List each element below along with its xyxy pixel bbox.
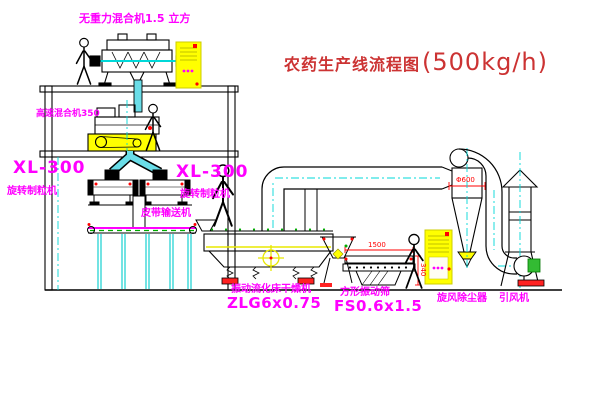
control-cabinet-right [425, 230, 452, 284]
dimension-screen-height: 340 [419, 263, 426, 276]
label-gravity-mixer: 无重力混合机1.5 立方 [79, 13, 190, 24]
label-granulator-right-name: 旋转制粒机 [180, 190, 230, 200]
control-cabinet-top [176, 42, 201, 88]
dimension-screen-length: 1500 [368, 242, 386, 249]
granulator-left-drawing [88, 170, 138, 205]
cyclone-drawing [449, 148, 485, 270]
label-screen-model: FS0.6x1.5 [334, 299, 422, 314]
belt-conveyor-drawing [88, 223, 197, 289]
drawing-title: 农药生产线流程图 (500kg/h) [284, 48, 548, 76]
dimension-cyclone-diameter: Φ600 [456, 177, 475, 184]
fluid-bed-dryer-drawing [204, 228, 333, 284]
label-dryer-model: ZLG6x0.75 [227, 296, 321, 311]
label-fan-name: 引风机 [499, 294, 529, 304]
label-cyclone-name: 旋风除尘器 [437, 294, 487, 304]
label-granulator-left-name: 旋转制粒机 [7, 187, 57, 197]
gravity-mixer-drawing [90, 34, 186, 112]
cad-drawing-page: 农药生产线流程图 (500kg/h) 无重力混合机1.5 立方 高速混合机350… [0, 0, 600, 403]
title-chinese: 农药生产线流程图 [284, 51, 420, 75]
person-figure-top-floor [76, 38, 91, 84]
label-granulator-right-model: XL-300 [176, 164, 248, 181]
label-high-speed-mixer: 高速混合机350 [36, 110, 100, 119]
fan-drawing [514, 256, 544, 286]
label-belt-conveyor: 皮带输送机 [141, 209, 191, 219]
y-duct [112, 151, 160, 172]
label-granulator-left-model: XL-300 [13, 160, 85, 177]
person-figure-ground [405, 234, 423, 287]
title-capacity: (500kg/h) [422, 48, 548, 76]
exhaust-duct [262, 167, 452, 231]
